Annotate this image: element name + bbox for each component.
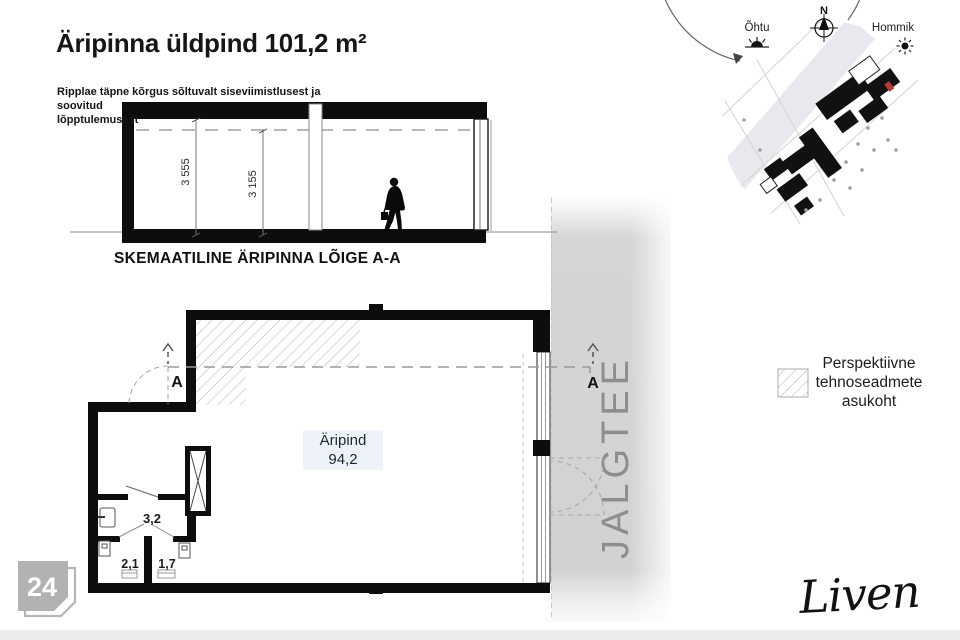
section-caption: SKEMAATILINE ÄRIPINNA LÕIGE A-A	[114, 250, 401, 268]
legend-line1: Perspektiivne	[810, 354, 928, 373]
section-glazing	[474, 119, 488, 230]
ceiling-note-line1: Ripplae täpne kõrgus sõltuvalt siseviimi…	[57, 85, 357, 113]
toilet-right-detail	[182, 546, 187, 550]
person-silhouette	[381, 178, 405, 233]
section-arrow-left	[163, 344, 173, 364]
tech-zone-hatch-upper	[196, 320, 360, 367]
wc-left-area-label: 2,1	[121, 557, 138, 571]
east-label: Hommik	[872, 22, 914, 34]
shaft	[185, 446, 211, 516]
section-floor-slab	[122, 229, 486, 243]
dimension-ceiling-height: 3 155	[247, 129, 267, 237]
dimension-full-height: 3 555	[180, 118, 200, 237]
dim-full-height-text: 3 555	[180, 158, 192, 186]
liven-logo: Liven	[797, 565, 921, 624]
main-room-area: 94,2	[303, 450, 383, 469]
page-title: Äripinna üldpind 101,2 m²	[56, 28, 366, 59]
legend-hatch-swatch	[778, 369, 808, 397]
main-room-label: Äripind 94,2	[303, 430, 383, 470]
ceiling-note: Ripplae täpne kõrgus sõltuvalt siseviimi…	[57, 85, 357, 127]
site-plan: N Õhtu Hommik	[656, 0, 918, 224]
ceiling-note-line2: lõpptulemusest	[57, 113, 357, 127]
floorplan-page: JALGTEE 3 555 3	[0, 0, 960, 640]
page-number-badge: 24	[18, 561, 75, 616]
page-number: 24	[27, 572, 57, 602]
sun-icon	[897, 38, 914, 55]
wc-right-area-label: 1,7	[158, 557, 175, 571]
sunset-icon	[745, 37, 769, 47]
arc-arrowhead	[733, 53, 743, 64]
legend-line3: asukoht	[810, 392, 928, 411]
section-marker-left: A	[171, 374, 183, 391]
wc-left-door-leaf	[119, 524, 144, 537]
sidewalk-label: JALGTEE	[595, 355, 637, 559]
hall-area-label: 3,2	[143, 511, 161, 526]
sidewalk-strip: JALGTEE	[551, 196, 671, 622]
entrance-door-swing	[129, 366, 168, 405]
dim-ceiling-height-text: 3 155	[247, 170, 259, 198]
west-label: Õhtu	[745, 21, 770, 34]
hall-door-leaf	[126, 486, 158, 497]
main-room-name: Äripind	[303, 431, 383, 450]
tech-zone-hatch-lower	[196, 367, 246, 405]
footer-band	[0, 630, 960, 640]
legend-text: Perspektiivne tehnoseadmete asukoht	[810, 354, 928, 411]
site-plan-map	[708, 20, 918, 224]
toilet-left-detail	[102, 544, 107, 548]
plan-glazing	[537, 352, 550, 583]
site-roads	[708, 20, 918, 224]
section-marker-right: A	[587, 375, 599, 392]
legend-line2: tehnoseadmete	[810, 373, 928, 392]
